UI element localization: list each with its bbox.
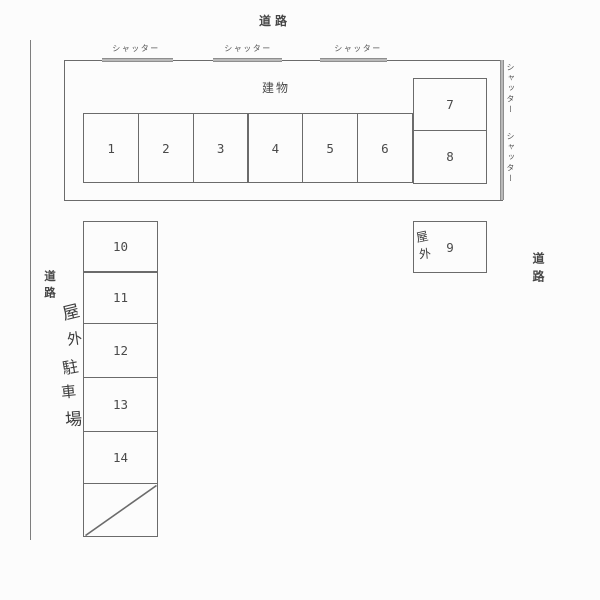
stall-8: 8 [413, 130, 487, 184]
outdoor-box-label-char-2: 外 [418, 245, 431, 263]
stall-2: 2 [138, 113, 194, 183]
stall-1: 1 [83, 113, 139, 183]
shutter-label-3: シャッター [334, 43, 382, 54]
handwritten-label-char-2: 外 [66, 327, 84, 350]
handwritten-label-char-1: 屋 [59, 296, 82, 324]
shutter-bar-2 [213, 58, 282, 62]
handwritten-label-char-3: 駐 [60, 353, 80, 379]
handwritten-label-char-5: 場 [64, 404, 83, 430]
stall-5: 5 [302, 113, 358, 183]
shutter-bar-3 [320, 58, 387, 62]
stall-12: 12 [83, 323, 158, 378]
stall-14: 14 [83, 431, 158, 485]
building-label: 建物 [252, 79, 300, 96]
stall-row-building: 1 2 3 4 5 6 [83, 113, 413, 183]
handwritten-label-char-4: 車 [60, 380, 77, 402]
stall-6: 6 [357, 113, 413, 183]
shutter-label-right-1: シャッター [505, 63, 516, 116]
road-label-top: 道路 [252, 12, 298, 29]
stall-3: 3 [193, 113, 249, 183]
shutter-label-2: シャッター [224, 43, 272, 54]
road-label-left: 道路 [42, 270, 58, 303]
shutter-label-right-2: シャッター [505, 132, 516, 185]
shutter-bar-right [500, 60, 504, 200]
road-line-left [30, 40, 32, 540]
stall-10: 10 [83, 221, 158, 273]
shutter-bar-1 [102, 58, 173, 62]
diagonal-line [85, 485, 157, 536]
stall-7: 7 [413, 78, 487, 131]
parking-layout-diagram: 道路 道路 道路 シャッター シャッター シャッター 建物 シャッター シャッタ… [0, 0, 600, 600]
road-label-right: 道路 [530, 252, 547, 288]
stall-4: 4 [247, 113, 303, 183]
shutter-label-1: シャッター [112, 43, 160, 54]
diagonal-cell [83, 483, 158, 537]
stall-11: 11 [83, 271, 158, 324]
stall-13: 13 [83, 377, 158, 432]
